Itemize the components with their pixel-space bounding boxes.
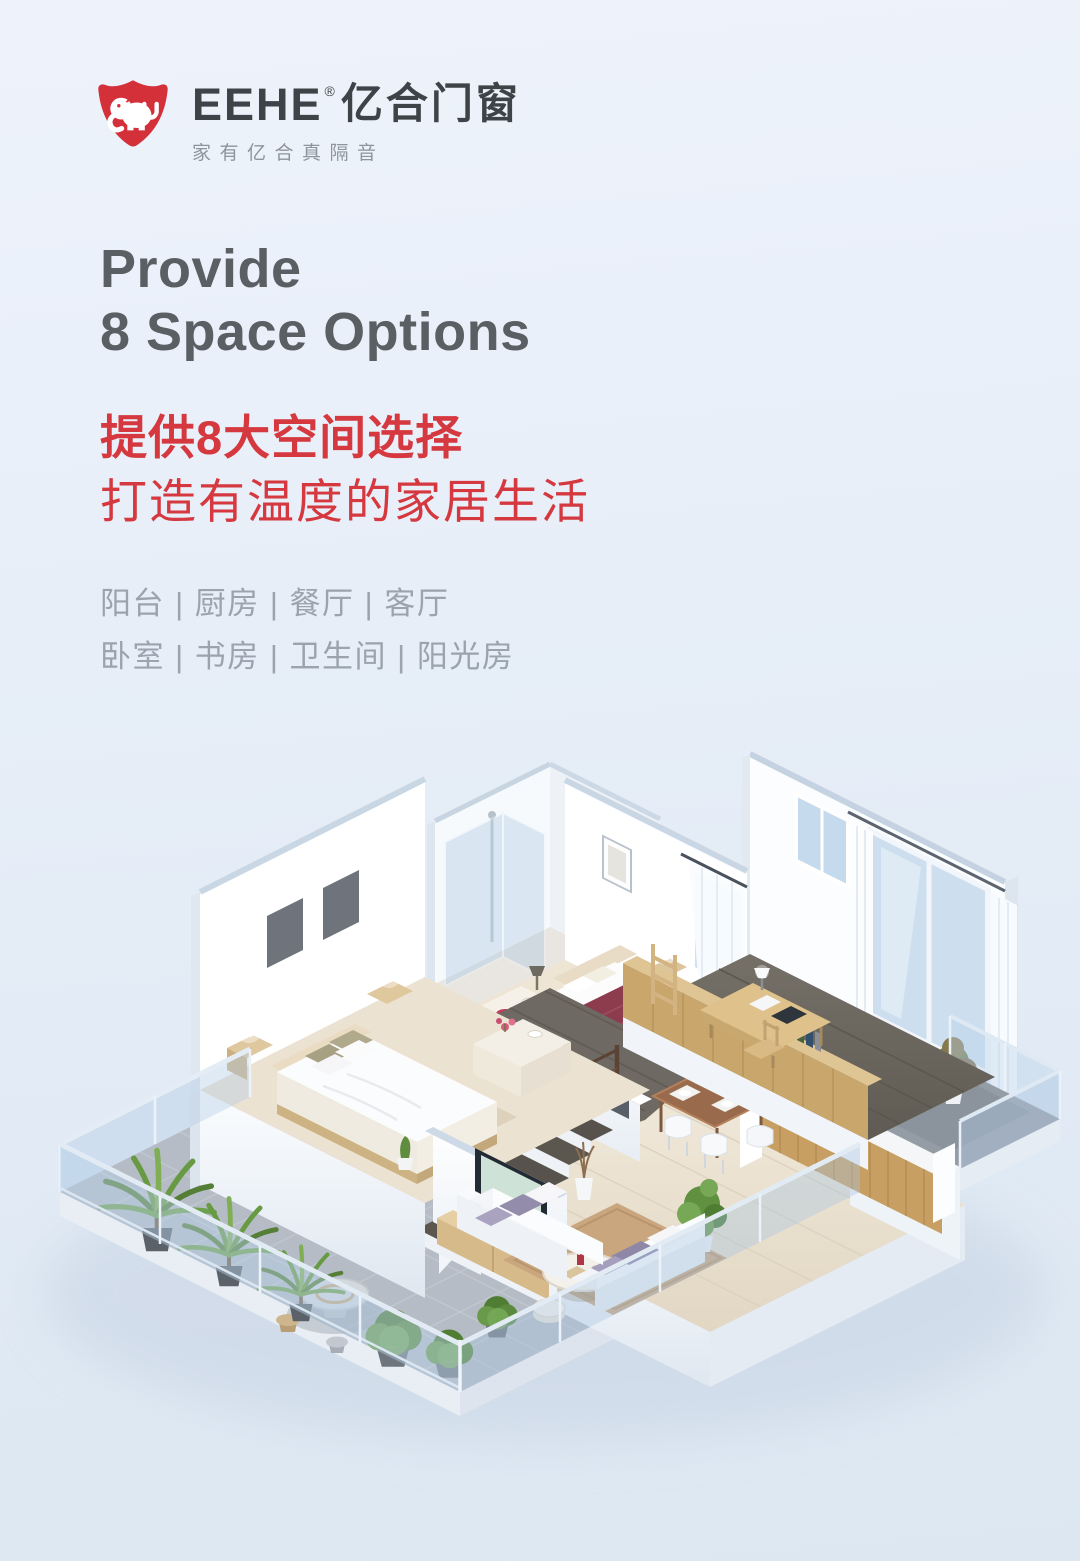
registered-trademark-icon: ® xyxy=(325,82,335,98)
room-options-list: 阳台 | 厨房 | 餐厅 | 客厅 卧室 | 书房 | 卫生间 | 阳光房 xyxy=(100,577,514,684)
brand-name-en: EEHE xyxy=(192,82,323,127)
dining-chair-end xyxy=(747,1126,773,1148)
subheadline-cn-bold: 提供8大空间选择 xyxy=(100,399,463,468)
brand-tagline: 家有亿合真隔音 xyxy=(192,138,521,165)
brand-shield-logo xyxy=(98,76,168,162)
brand-header: EEHE ® 亿合门窗 家有亿合真隔音 xyxy=(98,76,521,165)
shower-enclosure xyxy=(445,811,545,986)
headline-line1: Provide xyxy=(100,238,531,301)
headline-en: Provide 8 Space Options xyxy=(100,238,531,363)
curtain-left xyxy=(851,821,873,1024)
headline-line2: 8 Space Options xyxy=(100,301,531,364)
brand-name-cn: 亿合门窗 xyxy=(341,82,521,125)
apartment-scene xyxy=(45,754,1060,1442)
subheadline-cn-regular: 打造有温度的家居生活 xyxy=(100,463,590,532)
room-options-row1: 阳台 | 厨房 | 餐厅 | 客厅 xyxy=(100,577,514,630)
kitchen-column xyxy=(933,1143,955,1223)
room-options-row2: 卧室 | 书房 | 卫生间 | 阳光房 xyxy=(100,630,514,683)
apartment-3d-illustration xyxy=(0,0,1080,1561)
